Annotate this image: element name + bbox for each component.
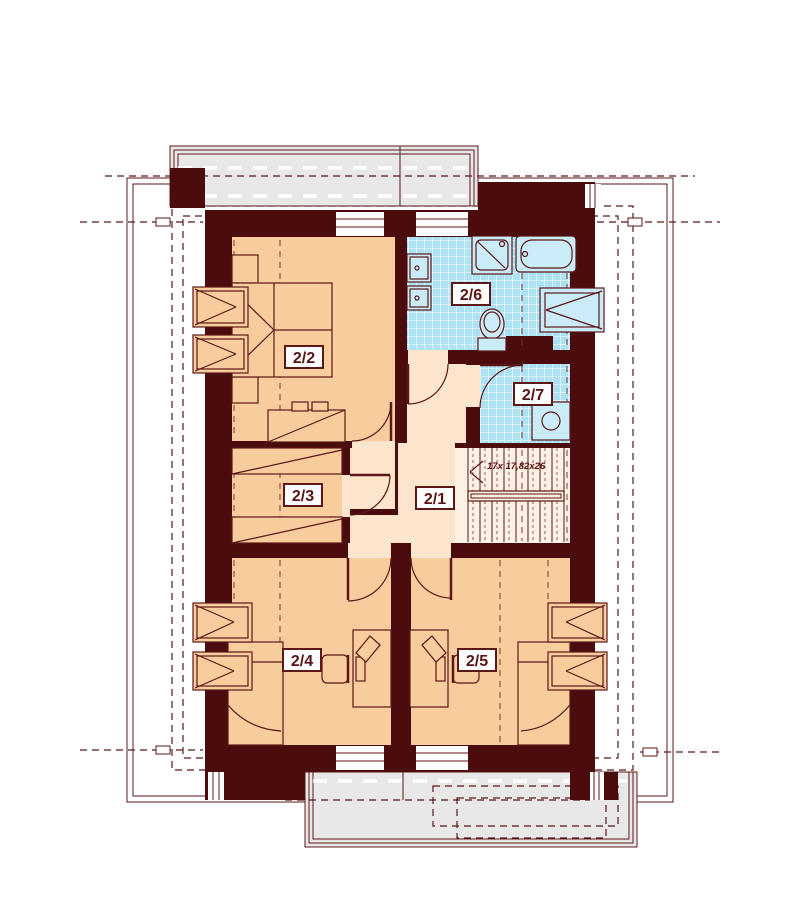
washbasin-symbol <box>407 254 431 282</box>
room-label-2-2: 2/2 <box>285 346 323 368</box>
window <box>585 184 601 208</box>
gutter-fitting-icon <box>156 746 170 754</box>
desk-symbol <box>410 630 448 707</box>
nightstand-symbol <box>232 255 258 283</box>
svg-text:2/2: 2/2 <box>293 350 315 367</box>
nightstand-symbol <box>232 377 258 403</box>
window <box>208 772 224 800</box>
door-opening-2-4 <box>348 543 391 558</box>
gutter-fitting-icon <box>156 218 170 226</box>
room-label-2-5: 2/5 <box>458 649 496 671</box>
chair-symbol <box>322 655 348 683</box>
wardrobe-symbol <box>193 603 252 642</box>
window <box>416 212 468 236</box>
wardrobe-symbol <box>232 448 342 474</box>
svg-text:2/5: 2/5 <box>466 653 488 670</box>
gutter-fitting-icon <box>628 218 642 226</box>
wardrobe-symbol <box>232 517 342 543</box>
shower-symbol <box>472 236 512 274</box>
svg-text:2/3: 2/3 <box>292 488 314 505</box>
window <box>590 772 604 800</box>
gutter-fitting-icon <box>643 748 657 756</box>
svg-text:2/4: 2/4 <box>291 653 313 670</box>
door-opening-2-6 <box>408 350 448 364</box>
room-label-2-3: 2/3 <box>284 484 322 506</box>
wardrobe-symbol <box>548 603 607 642</box>
bathtub-symbol <box>516 236 576 272</box>
stair-annotation: 17x 17,82x26 <box>487 461 546 472</box>
washing-machine-symbol <box>532 402 570 440</box>
wardrobe-symbol <box>548 652 607 690</box>
room-label-2-4: 2/4 <box>283 649 321 671</box>
hall-band-floor <box>350 515 455 543</box>
window <box>336 746 384 770</box>
toilet-symbol <box>478 309 506 351</box>
svg-text:2/1: 2/1 <box>424 491 446 508</box>
wall-pier <box>506 336 553 364</box>
room-label-2-1: 2/1 <box>416 487 454 509</box>
wardrobe-symbol <box>193 652 252 690</box>
door-opening-2-3 <box>342 475 350 517</box>
hall-alcove-floor <box>350 448 395 509</box>
window <box>416 746 468 770</box>
wardrobe-symbol <box>193 287 248 327</box>
door-opening-2-7 <box>466 365 480 407</box>
radiator-symbol <box>540 288 604 332</box>
room-label-2-6: 2/6 <box>452 283 490 305</box>
desk-symbol <box>353 630 391 707</box>
window <box>336 212 384 236</box>
room-label-2-7: 2/7 <box>514 383 552 405</box>
wardrobe-symbol <box>193 335 248 373</box>
floor-plan-page: 17x 17,82x26 2/2 2/3 2/1 2/4 2/5 2/6 2/7 <box>0 0 800 900</box>
washbasin-symbol <box>407 286 431 310</box>
door-opening-2-2 <box>352 441 395 448</box>
svg-text:2/6: 2/6 <box>460 287 482 304</box>
stair-handrail <box>468 491 564 501</box>
floor-plan-svg: 17x 17,82x26 2/2 2/3 2/1 2/4 2/5 2/6 2/7 <box>0 0 800 900</box>
svg-text:2/7: 2/7 <box>522 387 544 404</box>
door-opening-2-5 <box>411 543 451 558</box>
